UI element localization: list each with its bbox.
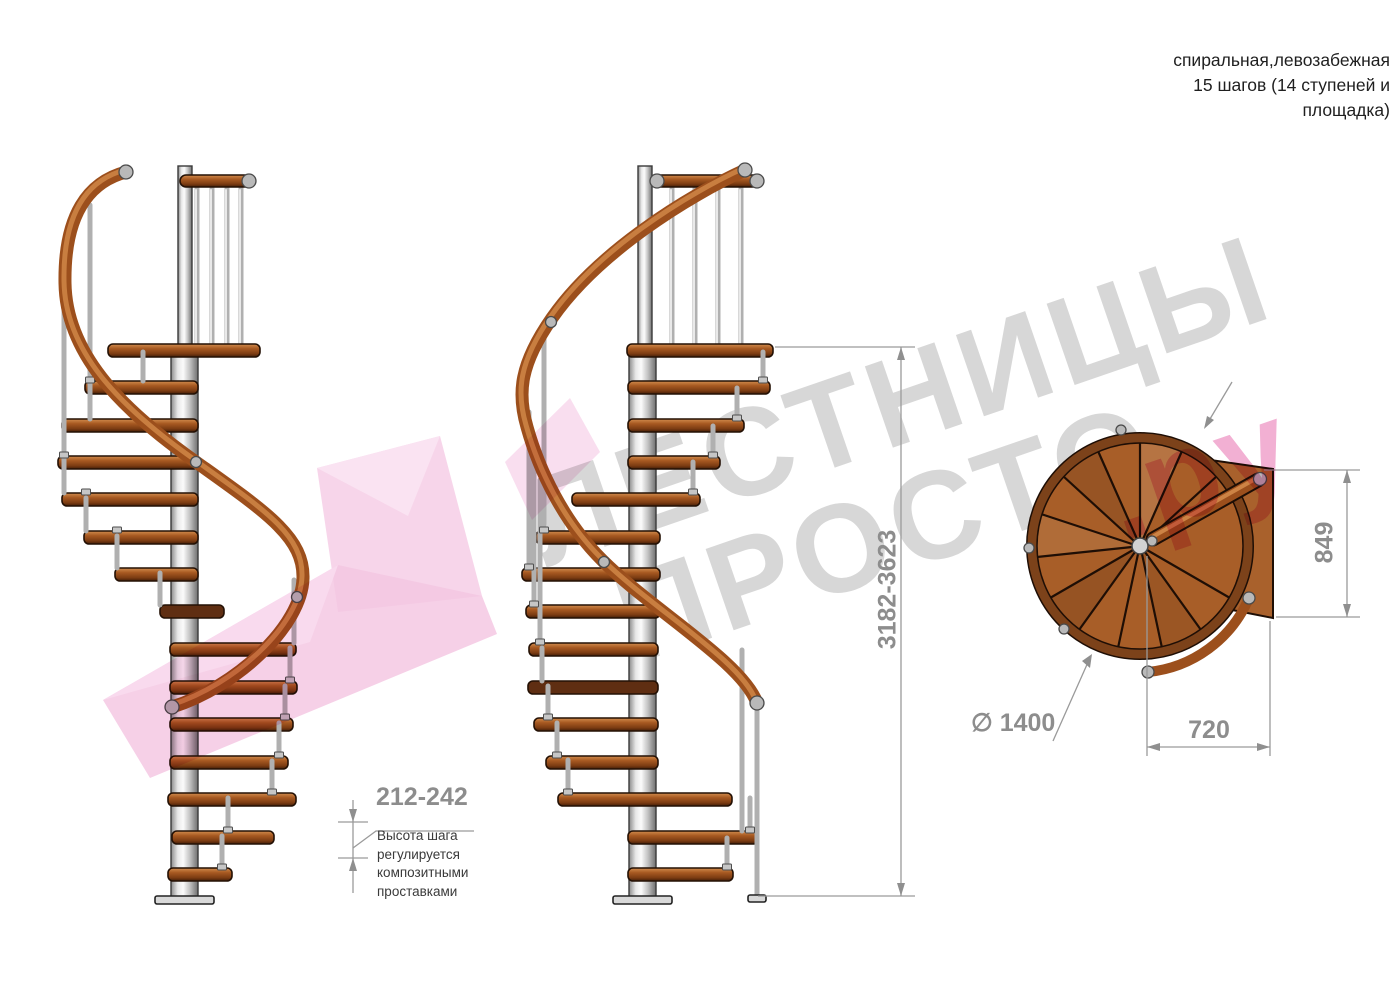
handrail-top-cap	[738, 163, 752, 177]
handrail-top-cap	[119, 165, 133, 179]
dimension-diameter-leader	[1053, 654, 1092, 741]
landing-tread	[627, 344, 773, 357]
base-plate	[155, 896, 214, 904]
rim-baluster-cap	[1024, 543, 1034, 553]
handrail-cap	[1142, 666, 1154, 678]
top-balustrade	[650, 174, 764, 345]
dimension-step-height	[338, 800, 474, 893]
staircase-drawing	[0, 0, 1400, 1000]
tread	[62, 419, 198, 432]
handrail-sleeve	[599, 557, 610, 568]
tread	[160, 605, 224, 618]
handrail-end-cap	[165, 700, 179, 714]
drawing-sheet: ЛЕСТНИЦЫ ПРОСТО	[0, 0, 1400, 1000]
tread	[526, 605, 660, 618]
dimension-landing-depth	[1264, 470, 1360, 617]
rim-baluster-cap	[1059, 624, 1069, 634]
tread	[628, 419, 744, 432]
left-side-view	[58, 165, 303, 904]
tread	[170, 718, 293, 731]
tread	[628, 868, 733, 881]
landing-tread	[108, 344, 260, 357]
rod-ball-joint	[1147, 536, 1157, 546]
center-pole-top	[1132, 538, 1148, 554]
treads	[522, 344, 773, 881]
top-plan-view	[1024, 425, 1273, 678]
tread	[536, 531, 660, 544]
base-plate	[613, 896, 672, 904]
top-leader	[1204, 382, 1232, 429]
upper-post	[638, 166, 652, 348]
tread	[529, 643, 658, 656]
rim-baluster-cap	[1116, 425, 1126, 435]
rail-end-cap	[650, 174, 664, 188]
handrail-cap	[1243, 592, 1255, 604]
tread	[628, 831, 758, 844]
tread	[628, 381, 770, 394]
tread	[168, 793, 296, 806]
tread	[58, 456, 198, 469]
tread	[522, 568, 660, 581]
handrail-sleeve	[191, 457, 202, 468]
tread	[558, 793, 732, 806]
treads	[58, 344, 297, 881]
tread	[628, 456, 720, 469]
upper-post	[178, 166, 192, 348]
handrail-sleeve	[546, 317, 557, 328]
handrail-end-cap	[750, 696, 764, 710]
tread	[115, 568, 198, 581]
middle-side-view	[521, 163, 773, 904]
handrail-sleeve	[292, 592, 303, 603]
rail-end-cap	[750, 174, 764, 188]
tread	[572, 493, 700, 506]
dimension-total-height	[758, 347, 915, 896]
rail-end-cap	[242, 174, 256, 188]
tread	[546, 756, 658, 769]
tread	[84, 531, 198, 544]
handrail-rod-cap	[1254, 473, 1267, 486]
